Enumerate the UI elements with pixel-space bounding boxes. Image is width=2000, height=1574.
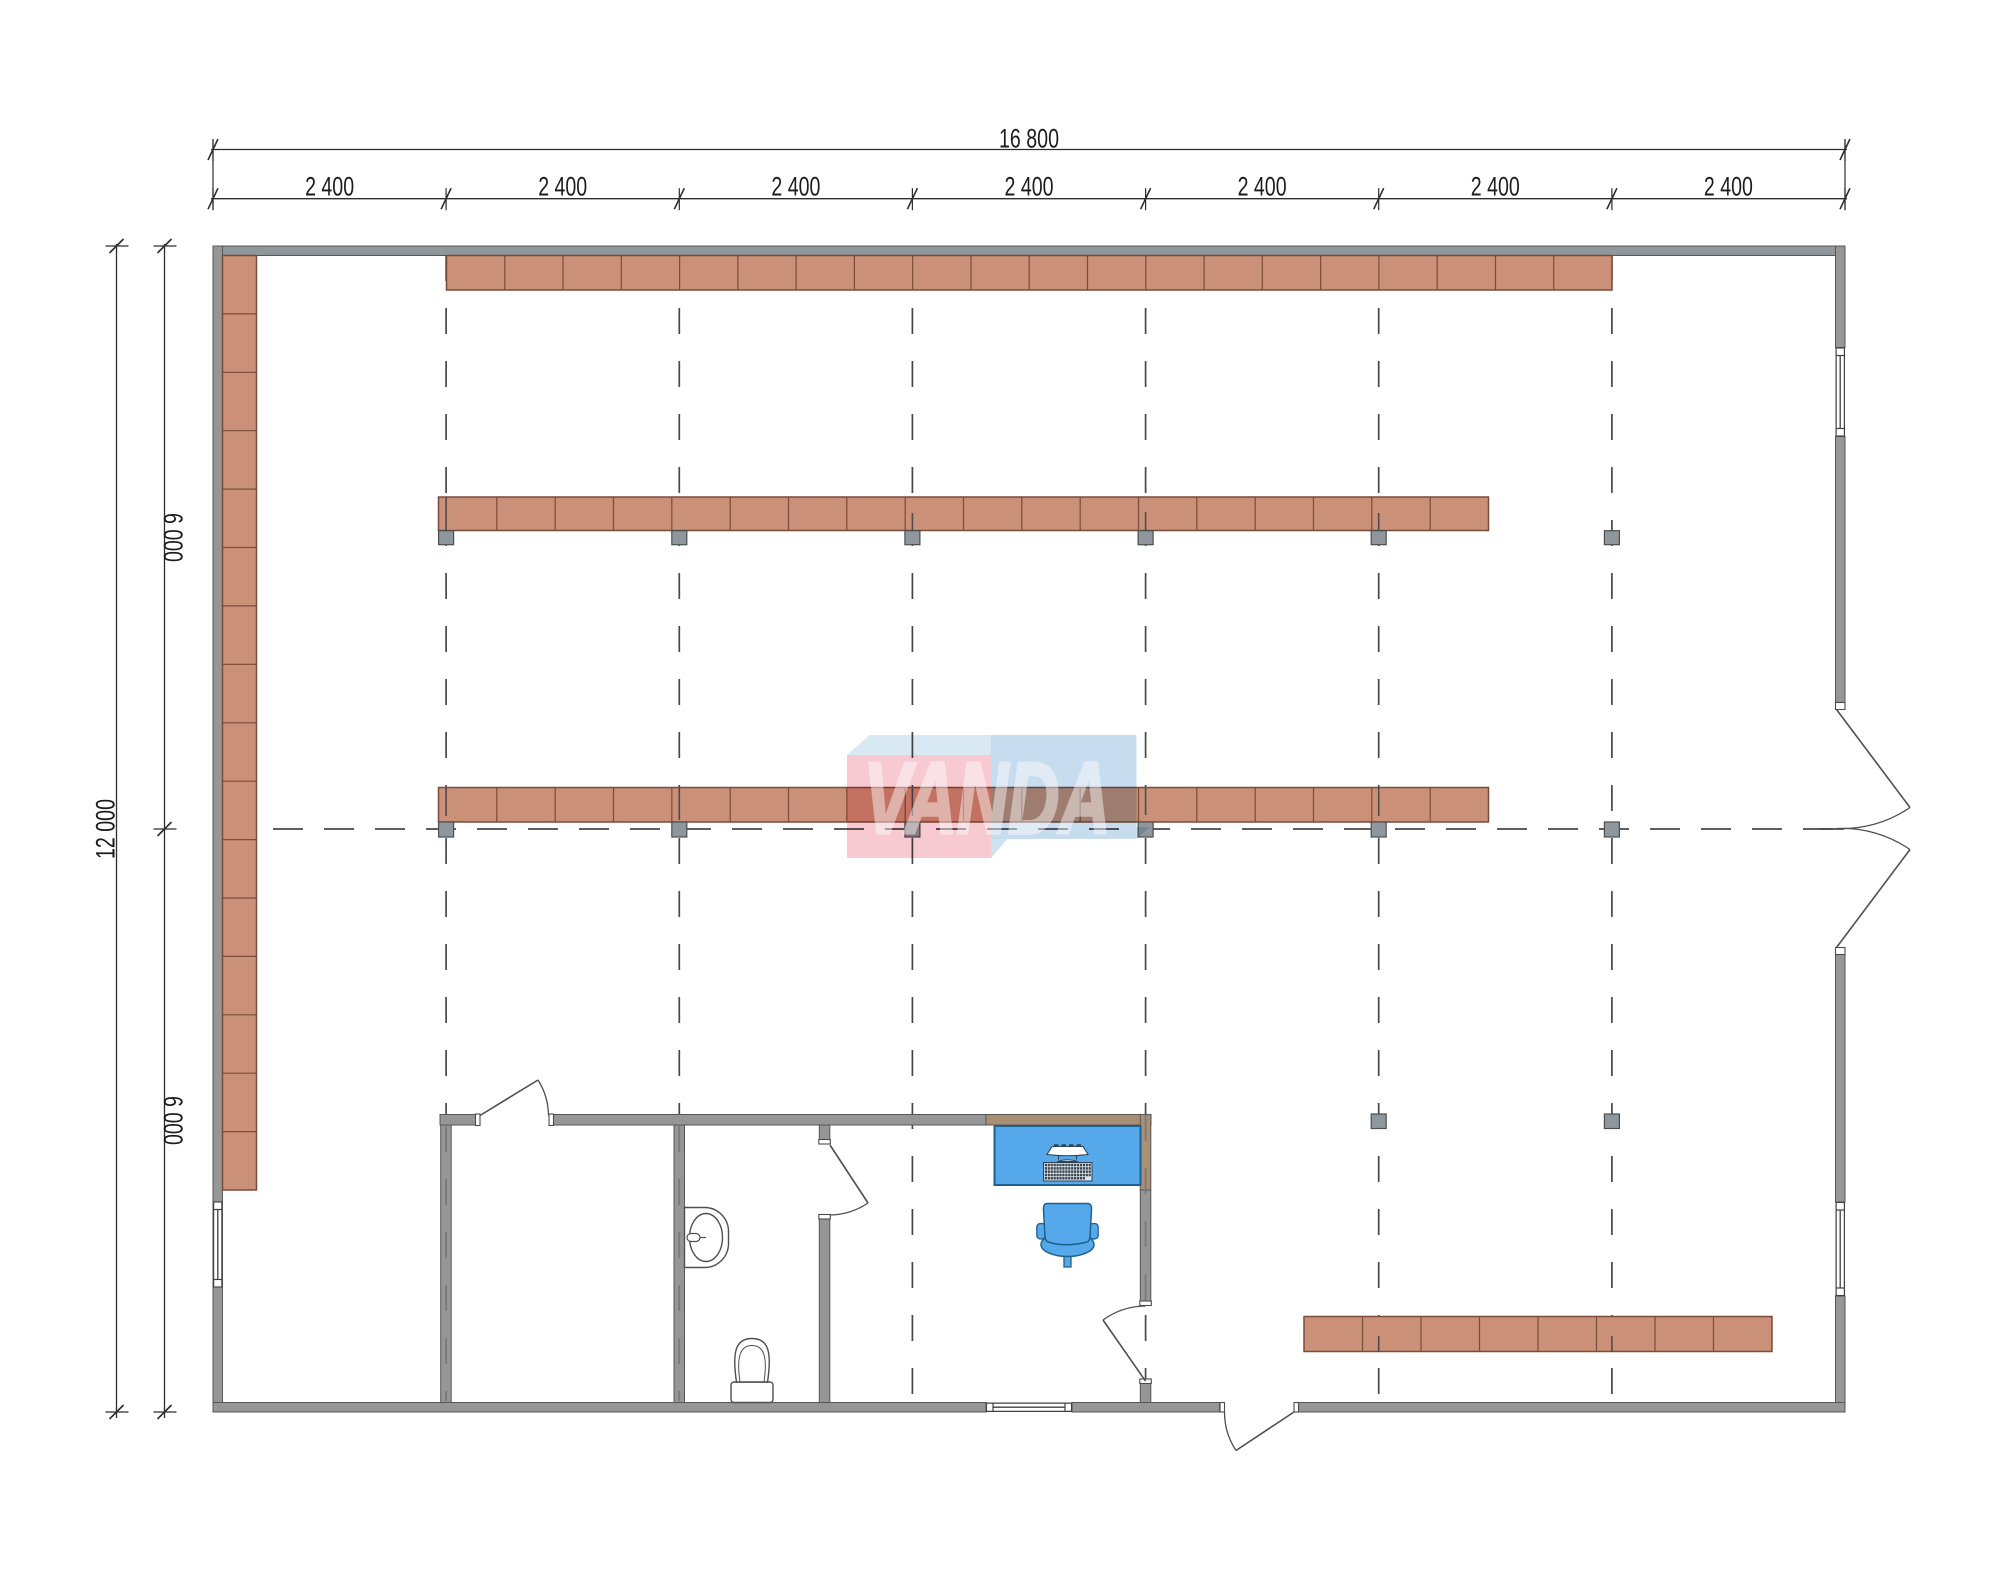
svg-text:12 000: 12 000 xyxy=(91,799,121,859)
svg-text:6 000: 6 000 xyxy=(158,1096,188,1145)
svg-text:16 800: 16 800 xyxy=(999,124,1059,154)
svg-text:2 400: 2 400 xyxy=(1238,172,1287,202)
svg-text:2 400: 2 400 xyxy=(771,172,820,202)
svg-text:2 400: 2 400 xyxy=(1704,172,1753,202)
svg-text:VANDA: VANDA xyxy=(864,743,1111,855)
svg-text:2 400: 2 400 xyxy=(1471,172,1520,202)
svg-text:6 000: 6 000 xyxy=(158,513,188,562)
svg-text:2 400: 2 400 xyxy=(305,172,354,202)
svg-text:2 400: 2 400 xyxy=(1005,172,1054,202)
svg-text:2 400: 2 400 xyxy=(538,172,587,202)
